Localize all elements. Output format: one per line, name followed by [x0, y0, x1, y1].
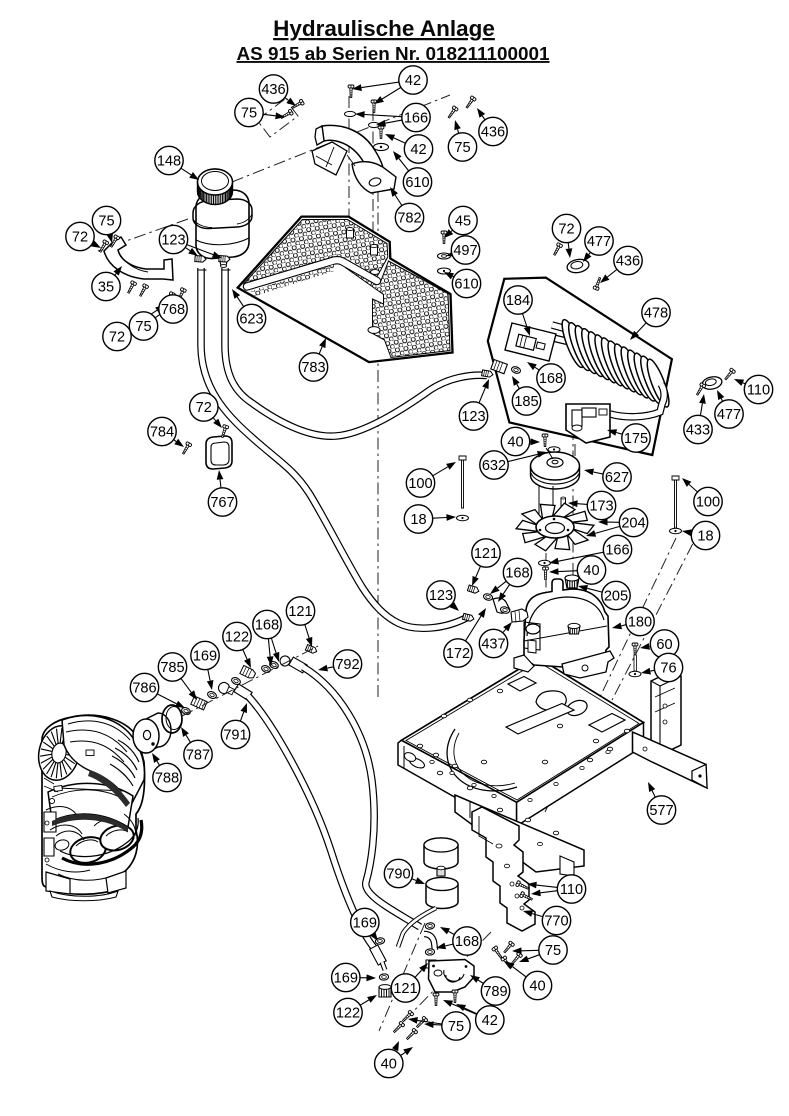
- svg-text:168: 168: [505, 566, 529, 582]
- svg-text:168: 168: [255, 618, 279, 634]
- svg-text:204: 204: [621, 516, 645, 532]
- svg-text:205: 205: [604, 589, 628, 605]
- svg-text:123: 123: [161, 233, 185, 249]
- svg-text:166: 166: [605, 543, 629, 559]
- svg-text:Hydraulische Anlage: Hydraulische Anlage: [273, 16, 495, 41]
- svg-text:72: 72: [72, 230, 88, 246]
- svg-text:45: 45: [455, 214, 471, 230]
- svg-text:477: 477: [717, 407, 741, 423]
- svg-text:100: 100: [696, 495, 720, 511]
- svg-text:76: 76: [660, 661, 676, 677]
- svg-text:184: 184: [506, 293, 530, 309]
- svg-text:75: 75: [448, 1019, 464, 1035]
- svg-text:AS 915 ab Serien Nr. 018211100: AS 915 ab Serien Nr. 018211100001: [237, 44, 550, 65]
- svg-text:40: 40: [583, 563, 599, 579]
- svg-text:784: 784: [150, 425, 174, 441]
- svg-text:185: 185: [514, 394, 538, 410]
- svg-text:786: 786: [132, 681, 156, 697]
- svg-text:436: 436: [481, 125, 505, 141]
- svg-text:169: 169: [334, 971, 358, 987]
- svg-text:122: 122: [225, 630, 249, 646]
- svg-text:18: 18: [410, 512, 426, 528]
- svg-text:433: 433: [686, 423, 710, 439]
- svg-text:180: 180: [628, 615, 652, 631]
- svg-text:627: 627: [605, 470, 629, 486]
- svg-text:172: 172: [446, 646, 470, 662]
- svg-text:477: 477: [587, 234, 611, 250]
- svg-text:783: 783: [301, 360, 325, 376]
- svg-text:436: 436: [616, 254, 640, 270]
- svg-text:72: 72: [109, 330, 125, 346]
- svg-text:42: 42: [405, 73, 421, 89]
- svg-text:788: 788: [155, 771, 179, 787]
- svg-text:121: 121: [393, 981, 417, 997]
- svg-text:123: 123: [461, 409, 485, 425]
- svg-text:577: 577: [649, 803, 673, 819]
- svg-text:791: 791: [223, 728, 247, 744]
- svg-text:168: 168: [539, 371, 563, 387]
- svg-text:437: 437: [481, 637, 505, 653]
- svg-text:40: 40: [507, 435, 523, 451]
- svg-text:35: 35: [98, 280, 114, 296]
- svg-text:436: 436: [261, 82, 285, 98]
- svg-text:110: 110: [747, 383, 770, 399]
- svg-text:121: 121: [288, 604, 312, 620]
- svg-text:122: 122: [336, 1006, 360, 1022]
- svg-text:169: 169: [193, 649, 217, 665]
- svg-text:42: 42: [482, 1013, 498, 1029]
- svg-text:770: 770: [544, 914, 568, 930]
- svg-text:785: 785: [160, 660, 184, 676]
- svg-text:166: 166: [404, 111, 428, 127]
- svg-text:75: 75: [545, 943, 561, 959]
- svg-text:782: 782: [397, 211, 421, 227]
- svg-text:75: 75: [98, 214, 114, 230]
- svg-text:792: 792: [335, 657, 359, 673]
- svg-text:75: 75: [241, 106, 257, 122]
- svg-text:497: 497: [453, 243, 477, 259]
- svg-text:75: 75: [454, 140, 470, 156]
- svg-text:168: 168: [455, 934, 479, 950]
- svg-text:72: 72: [196, 400, 212, 416]
- svg-text:123: 123: [429, 588, 453, 604]
- svg-text:42: 42: [410, 142, 426, 158]
- svg-text:60: 60: [656, 637, 672, 653]
- svg-text:610: 610: [405, 175, 429, 191]
- svg-text:40: 40: [529, 979, 545, 995]
- svg-text:789: 789: [483, 984, 507, 1000]
- svg-text:40: 40: [381, 1057, 397, 1073]
- svg-text:169: 169: [353, 916, 377, 932]
- svg-text:175: 175: [624, 431, 648, 447]
- svg-text:787: 787: [186, 748, 210, 764]
- svg-text:767: 767: [210, 495, 234, 511]
- svg-text:623: 623: [239, 312, 263, 328]
- svg-text:478: 478: [644, 306, 668, 322]
- svg-text:768: 768: [161, 302, 185, 318]
- svg-text:121: 121: [474, 546, 498, 562]
- svg-text:632: 632: [482, 458, 506, 474]
- svg-text:173: 173: [589, 499, 613, 515]
- svg-text:610: 610: [454, 277, 478, 293]
- svg-text:110: 110: [560, 882, 583, 898]
- svg-text:100: 100: [408, 476, 432, 492]
- svg-text:72: 72: [558, 222, 574, 238]
- svg-text:790: 790: [386, 867, 410, 883]
- svg-text:18: 18: [697, 529, 713, 545]
- svg-text:148: 148: [157, 154, 181, 170]
- svg-text:75: 75: [135, 319, 151, 335]
